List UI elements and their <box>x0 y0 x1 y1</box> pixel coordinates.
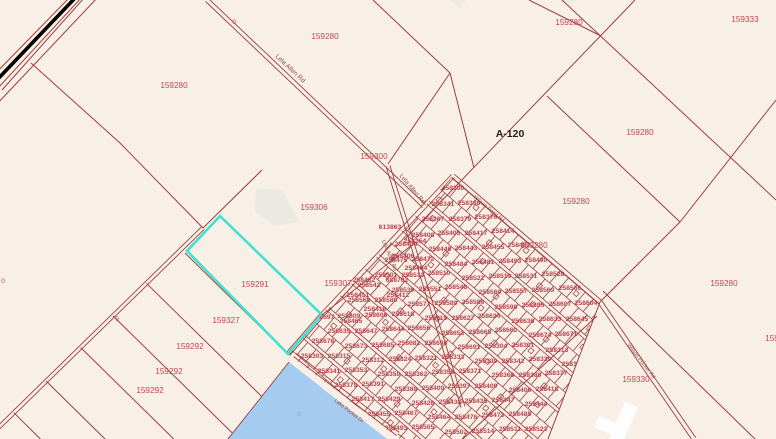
svg-text:258342: 258342 <box>502 358 525 365</box>
svg-text:159300: 159300 <box>360 152 388 161</box>
svg-text:258694: 258694 <box>425 340 448 347</box>
svg-text:A-120: A-120 <box>496 128 525 140</box>
svg-text:258446: 258446 <box>429 246 452 253</box>
svg-text:258577: 258577 <box>408 301 431 308</box>
svg-text:258301: 258301 <box>512 342 535 349</box>
svg-text:258400: 258400 <box>422 385 445 392</box>
svg-text:258438: 258438 <box>439 399 462 406</box>
svg-text:159280: 159280 <box>311 32 339 41</box>
svg-text:258476: 258476 <box>455 414 478 421</box>
svg-text:258595: 258595 <box>522 302 545 309</box>
svg-text:688702: 688702 <box>386 277 409 284</box>
svg-text:258379: 258379 <box>335 382 358 389</box>
svg-text:258465: 258465 <box>340 318 363 325</box>
svg-text:258514: 258514 <box>472 428 495 435</box>
svg-text:258635: 258635 <box>328 328 351 335</box>
svg-text:0: 0 <box>1 278 5 285</box>
svg-text:258350: 258350 <box>378 371 401 378</box>
svg-text:258303: 258303 <box>301 353 324 360</box>
svg-text:258586: 258586 <box>462 299 485 306</box>
svg-text:258560: 258560 <box>479 289 502 296</box>
svg-text:159280: 159280 <box>710 279 738 288</box>
svg-text:258467: 258467 <box>395 410 418 417</box>
svg-text:258417: 258417 <box>465 230 488 237</box>
svg-text:258426: 258426 <box>412 400 435 407</box>
svg-text:159327: 159327 <box>212 316 240 325</box>
svg-text:258691: 258691 <box>458 344 481 351</box>
svg-text:258671: 258671 <box>555 331 578 338</box>
svg-text:258451: 258451 <box>347 292 370 299</box>
svg-text:159: 159 <box>765 334 776 343</box>
svg-text:258502: 258502 <box>445 429 468 436</box>
svg-text:258406: 258406 <box>509 387 532 394</box>
svg-text:258447: 258447 <box>492 397 515 404</box>
svg-text:258615: 258615 <box>425 315 448 322</box>
svg-text:0: 0 <box>297 411 301 418</box>
svg-text:258418: 258418 <box>536 386 559 393</box>
svg-text:258324: 258324 <box>389 356 412 363</box>
svg-text:258510: 258510 <box>428 270 451 277</box>
svg-text:258304: 258304 <box>485 343 508 350</box>
svg-text:258481: 258481 <box>472 259 495 266</box>
svg-text:258313: 258313 <box>546 347 569 354</box>
svg-text:258412: 258412 <box>387 292 410 299</box>
svg-text:258484: 258484 <box>445 261 468 268</box>
svg-text:258429: 258429 <box>378 396 401 403</box>
svg-text:159280: 159280 <box>520 241 548 250</box>
svg-text:258656: 258656 <box>408 325 431 332</box>
svg-text:258645: 258645 <box>566 316 589 323</box>
svg-text:258636: 258636 <box>512 318 535 325</box>
svg-text:258404: 258404 <box>405 265 428 272</box>
svg-text:258315: 258315 <box>328 353 351 360</box>
svg-text:258598: 258598 <box>495 304 518 311</box>
svg-text:159292: 159292 <box>176 342 204 351</box>
svg-text:258566: 258566 <box>559 285 582 292</box>
svg-text:0: 0 <box>115 316 119 323</box>
svg-text:258367: 258367 <box>422 216 445 223</box>
svg-text:613863: 613863 <box>379 224 402 231</box>
svg-text:258674: 258674 <box>529 332 552 339</box>
svg-text:258362: 258362 <box>405 371 428 378</box>
svg-text:258551: 258551 <box>419 286 442 293</box>
svg-text:258339: 258339 <box>529 356 552 363</box>
svg-text:258455: 258455 <box>482 244 505 251</box>
svg-text:258523: 258523 <box>525 426 548 433</box>
svg-text:159280: 159280 <box>562 197 590 206</box>
svg-text:258455: 258455 <box>368 411 391 418</box>
svg-text:258341: 258341 <box>432 201 455 208</box>
svg-text:258379: 258379 <box>449 216 472 223</box>
svg-text:159330: 159330 <box>622 375 650 384</box>
svg-text:159292: 159292 <box>155 367 183 376</box>
svg-text:258653: 258653 <box>442 330 465 337</box>
svg-text:258444: 258444 <box>525 401 548 408</box>
svg-text:258443: 258443 <box>455 245 478 252</box>
svg-text:0: 0 <box>232 19 236 26</box>
svg-text:258685: 258685 <box>372 342 395 349</box>
svg-text:258368: 258368 <box>492 372 515 379</box>
svg-text:258673: 258673 <box>345 343 368 350</box>
svg-text:258618: 258618 <box>392 311 415 318</box>
svg-text:258397: 258397 <box>448 383 471 390</box>
svg-text:258391: 258391 <box>362 381 385 388</box>
svg-text:159333: 159333 <box>731 15 759 24</box>
svg-text:258522: 258522 <box>462 275 485 282</box>
svg-text:258682: 258682 <box>398 340 421 347</box>
svg-text:258606: 258606 <box>365 312 388 319</box>
svg-text:258473: 258473 <box>482 412 505 419</box>
svg-text:159292: 159292 <box>136 386 164 395</box>
svg-text:258604: 258604 <box>575 300 598 307</box>
svg-text:258341: 258341 <box>318 368 341 375</box>
svg-text:159307: 159307 <box>324 279 352 288</box>
svg-text:258417: 258417 <box>352 396 375 403</box>
svg-text:258511: 258511 <box>499 426 522 433</box>
svg-text:159280: 159280 <box>626 128 654 137</box>
svg-text:258662: 258662 <box>495 327 518 334</box>
svg-text:258627: 258627 <box>452 315 475 322</box>
svg-text:258665: 258665 <box>469 329 492 336</box>
svg-text:258359: 258359 <box>432 369 455 376</box>
svg-text:258371: 258371 <box>459 368 482 375</box>
svg-text:159306: 159306 <box>300 203 328 212</box>
svg-text:258644: 258644 <box>382 326 405 333</box>
svg-text:258531: 258531 <box>515 273 538 280</box>
svg-text:258505: 258505 <box>412 424 435 431</box>
svg-text:258353: 258353 <box>345 367 368 374</box>
svg-text:258607: 258607 <box>549 301 572 308</box>
svg-text:258414: 258414 <box>492 228 515 235</box>
svg-text:258569: 258569 <box>532 287 555 294</box>
svg-text:258321: 258321 <box>415 355 438 362</box>
svg-text:258647: 258647 <box>355 328 378 335</box>
svg-text:258624: 258624 <box>478 313 501 320</box>
svg-text:258528: 258528 <box>542 271 565 278</box>
svg-text:258519: 258519 <box>489 273 512 280</box>
svg-text:258354: 258354 <box>404 238 427 245</box>
svg-text:258462: 258462 <box>353 277 376 284</box>
svg-text:258589: 258589 <box>435 300 458 307</box>
svg-text:258416: 258416 <box>364 306 387 313</box>
svg-text:258464: 258464 <box>428 414 451 421</box>
svg-text:258490: 258490 <box>525 257 548 264</box>
svg-text:159280: 159280 <box>160 81 188 90</box>
svg-text:258633: 258633 <box>539 316 562 323</box>
svg-text:258312: 258312 <box>362 357 385 364</box>
svg-text:258300: 258300 <box>442 185 465 192</box>
svg-text:258388: 258388 <box>395 386 418 393</box>
svg-text:258435: 258435 <box>465 398 488 405</box>
svg-text:258676: 258676 <box>312 338 335 345</box>
svg-text:258409: 258409 <box>475 383 498 390</box>
svg-text:159291: 159291 <box>241 280 269 289</box>
svg-text:258472: 258472 <box>412 256 435 263</box>
svg-text:258377: 258377 <box>545 370 568 377</box>
svg-text:258380: 258380 <box>519 372 542 379</box>
svg-text:258333: 258333 <box>442 354 465 361</box>
svg-text:258493: 258493 <box>499 258 522 265</box>
svg-text:258330: 258330 <box>475 358 498 365</box>
svg-text:258548: 258548 <box>445 284 468 291</box>
svg-text:258405: 258405 <box>438 230 461 237</box>
svg-text:159280: 159280 <box>555 18 583 27</box>
svg-text:258557: 258557 <box>505 288 528 295</box>
svg-text:258406: 258406 <box>392 253 415 260</box>
svg-text:258485: 258485 <box>509 411 532 418</box>
